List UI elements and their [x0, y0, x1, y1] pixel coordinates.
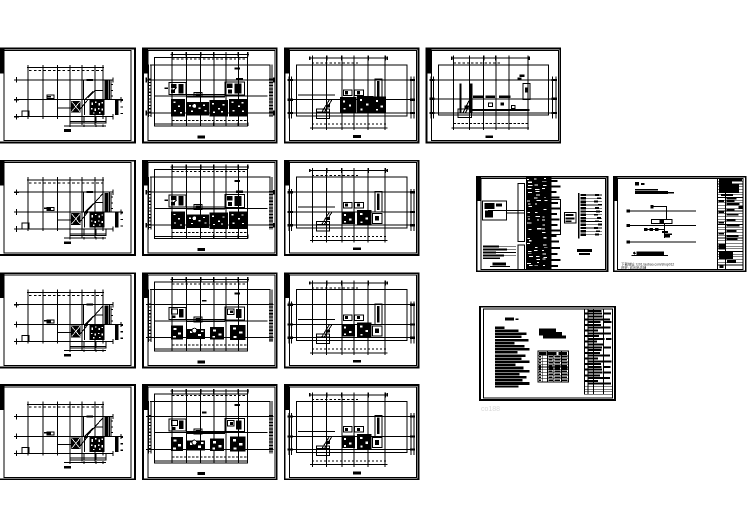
svg-text:旺旺: 欢乐妈店铺: 旺旺: 欢乐妈店铺 [621, 265, 647, 270]
svg-text:co188: co188 [481, 406, 500, 413]
